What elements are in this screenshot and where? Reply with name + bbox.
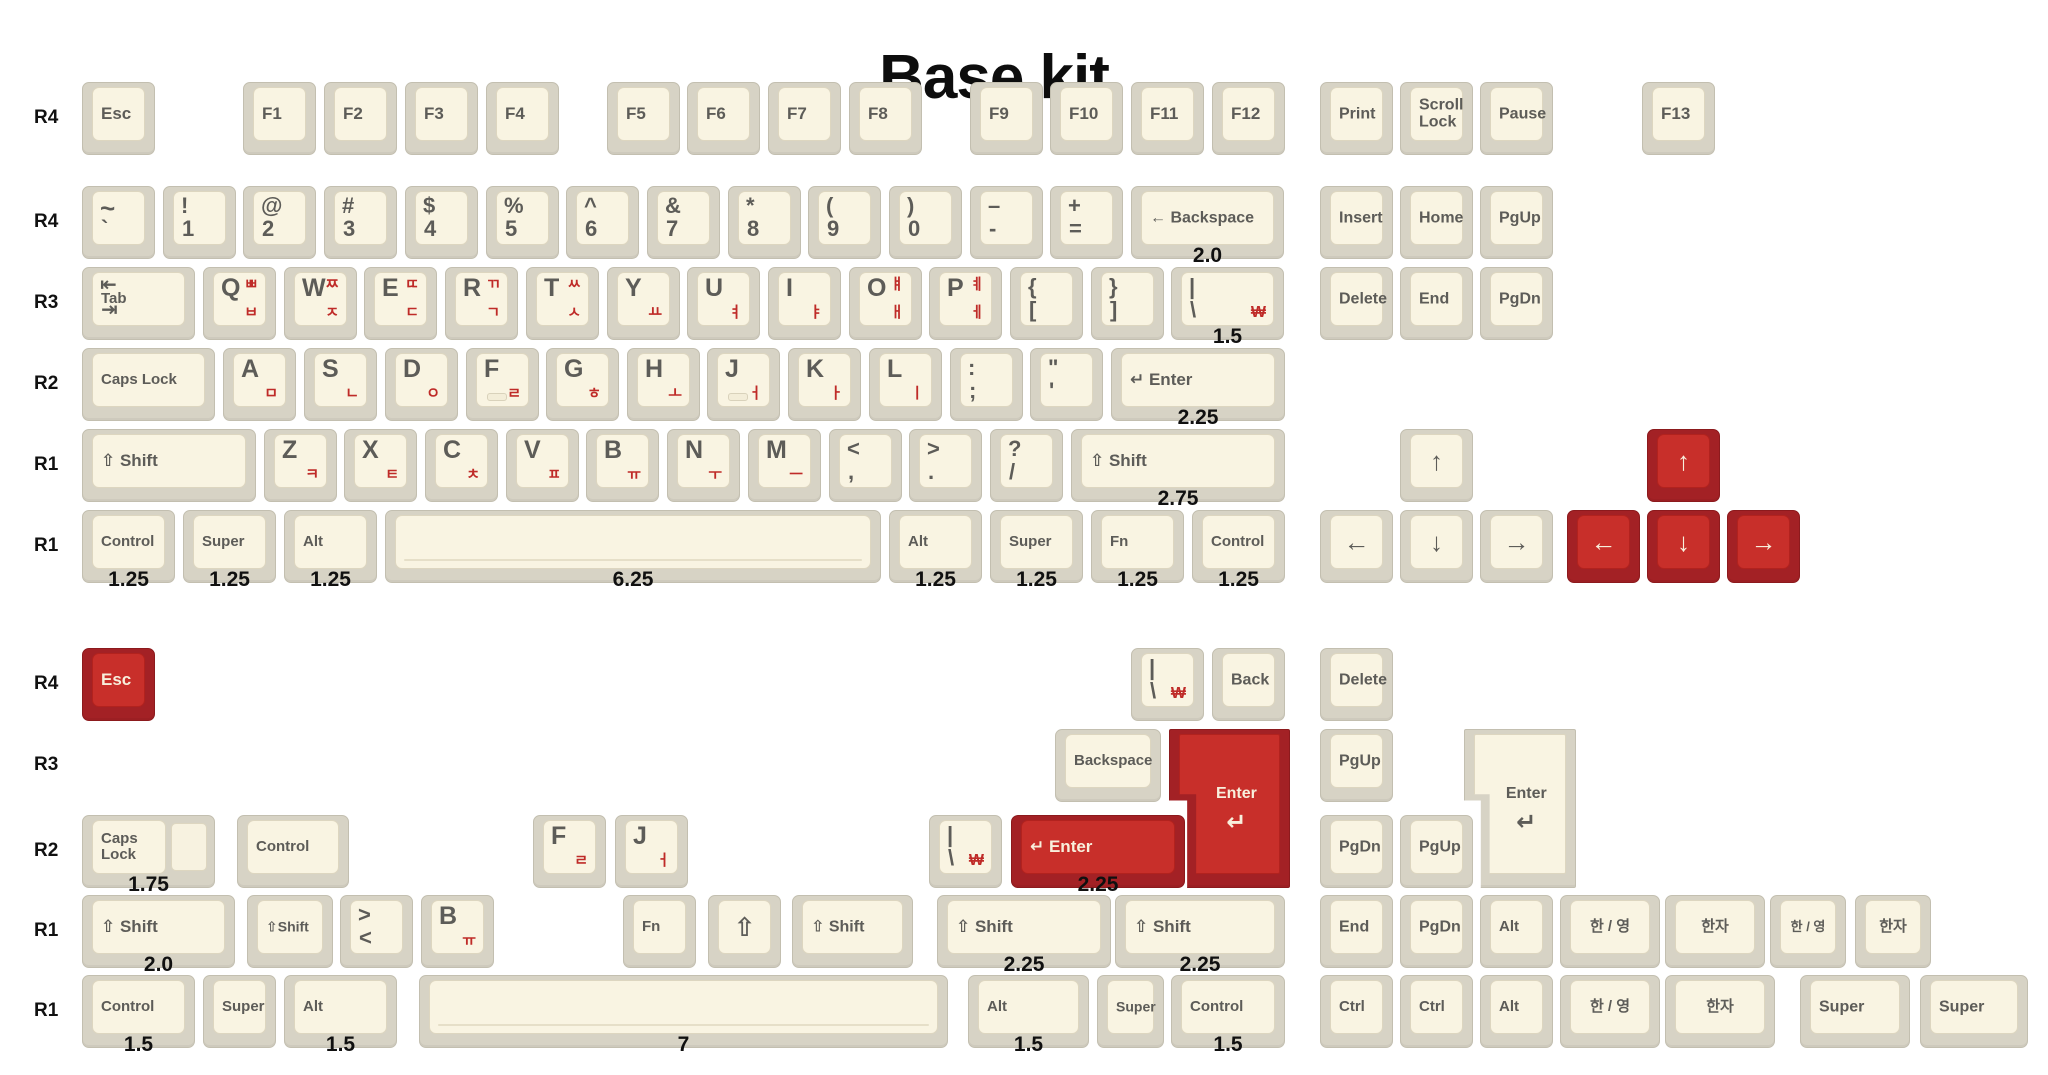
- key-legend: (: [826, 194, 833, 218]
- keycap-top: PgUp: [1490, 191, 1543, 245]
- key-legend: F2: [343, 105, 363, 123]
- keycap-top: Zㅋ: [274, 434, 327, 488]
- key-legend: F: [484, 356, 499, 383]
- key-1: !1: [163, 186, 236, 259]
- key-legend: ㅁ: [264, 386, 278, 402]
- keycap-top: Aㅁ: [233, 353, 286, 407]
- key-0: )0: [889, 186, 962, 259]
- keycap-top: →: [1490, 515, 1543, 569]
- key-legend: >: [358, 903, 371, 927]
- key-legend: Super: [1939, 998, 1984, 1015]
- size-label: 1.25: [1183, 568, 1294, 592]
- keycap-top: ↑: [1657, 434, 1710, 488]
- keycap-top: Jㅓ: [717, 353, 770, 407]
- key-legend: ₩: [1251, 304, 1266, 321]
- key-r: Rㄲㄱ: [445, 267, 518, 340]
- key-g: Gㅎ: [546, 348, 619, 421]
- key-legend: ': [1049, 379, 1054, 403]
- key-f2: F2: [324, 82, 397, 155]
- key-legend: :: [968, 356, 975, 380]
- keycap-top: F11: [1141, 87, 1194, 141]
- key-legend: }: [1109, 275, 1118, 299]
- key-l: Lㅣ: [869, 348, 942, 421]
- key-spacebar-7u: 7: [419, 975, 948, 1048]
- key-legend: Ctrl: [1419, 999, 1445, 1015]
- key-lbracket: {[: [1010, 267, 1083, 340]
- keycap-top: Caps Lock: [92, 820, 166, 874]
- key-legend: E: [382, 275, 399, 302]
- key-legend: 한 / 영: [1590, 919, 1630, 935]
- keycap-top: Back: [1222, 653, 1275, 707]
- keycap-top: ⇧ Shift: [1081, 434, 1275, 488]
- keycap-top: Xㅌ: [354, 434, 407, 488]
- key-f12: F12: [1212, 82, 1285, 155]
- key-shift-2-25u-b: ⇧ Shift2.25: [1115, 895, 1285, 968]
- row-label: R3: [34, 754, 80, 776]
- keycap-top: Rㄲㄱ: [455, 272, 508, 326]
- key-delete-alt: Delete: [1320, 648, 1393, 721]
- keycap-top: }]: [1101, 272, 1154, 326]
- key-legend: F6: [706, 105, 726, 123]
- key-legend: Back: [1231, 671, 1269, 688]
- key-a: Aㅁ: [223, 348, 296, 421]
- size-label: 1.25: [275, 568, 386, 592]
- key-legend: ㅗ: [668, 386, 682, 402]
- key-legend: Control: [101, 534, 154, 550]
- keycap-top: ><: [350, 900, 403, 954]
- row-label: R1: [34, 535, 80, 557]
- key-legend: A: [241, 356, 259, 383]
- keycap-top: Esc: [92, 653, 145, 707]
- keycap-top: PgDn: [1330, 820, 1383, 874]
- key-legend: Delete: [1339, 290, 1387, 307]
- key-semicolon: :;: [950, 348, 1023, 421]
- size-label: 6.25: [376, 568, 890, 592]
- keycap-top: Alt: [294, 980, 387, 1034]
- key-left-super: Super1.25: [183, 510, 276, 583]
- keycap-top: Caps Lock: [92, 353, 205, 407]
- keycap-top: !1: [173, 191, 226, 245]
- key-legend: &: [665, 194, 681, 218]
- key-legend: ⇧ Shift: [1090, 452, 1147, 470]
- key-legend: Y: [625, 275, 642, 302]
- key-legend: Esc: [101, 105, 131, 123]
- keycap-top: F10: [1060, 87, 1113, 141]
- size-label: 2.0: [73, 953, 244, 977]
- keycap-top: Super: [1810, 980, 1900, 1034]
- key-legend: ㅂ: [244, 305, 258, 321]
- key-legend: 한자: [1879, 919, 1907, 935]
- keycap-top: Cㅊ: [435, 434, 488, 488]
- key-quote: "': [1030, 348, 1103, 421]
- keycap-top: ⇧Shift: [257, 900, 323, 954]
- key-shift-2-25u-a: ⇧ Shift2.25: [937, 895, 1111, 968]
- keycap-top: @2: [253, 191, 306, 245]
- keycap-top: Delete: [1330, 272, 1383, 326]
- key-legend: F1: [262, 105, 282, 123]
- key-legend: %: [504, 194, 524, 218]
- key-2: @2: [243, 186, 316, 259]
- key-legend: L: [887, 356, 902, 383]
- key-f4: F4: [486, 82, 559, 155]
- keycap-top: Hㅗ: [637, 353, 690, 407]
- keycap-top: "': [1040, 353, 1093, 407]
- keycap-top: ⇧ Shift: [92, 900, 225, 954]
- key-alt-1-5u-left: Alt1.5: [284, 975, 397, 1048]
- keycap-top: Super: [1107, 980, 1154, 1034]
- key-legend: Ctrl: [1339, 999, 1365, 1015]
- key-legend: ⇧ Shift: [811, 918, 864, 935]
- keycap-top: PgUp: [1330, 734, 1383, 788]
- keycap-top: ^6: [576, 191, 629, 245]
- key-legend: –: [988, 194, 1000, 218]
- key-tab: ⇤Tab⇥: [82, 267, 195, 340]
- key-arrow-left-red: ←: [1567, 510, 1640, 583]
- key-legend: Z: [282, 437, 297, 464]
- key-f6: F6: [687, 82, 760, 155]
- keycap-top: {[: [1020, 272, 1073, 326]
- key-p: Pㅖㅔ: [929, 267, 1002, 340]
- key-legend: ": [1048, 356, 1058, 380]
- key-legend: F: [551, 823, 566, 850]
- key-legend: ⇧ Shift: [101, 918, 158, 936]
- key-legend: B: [439, 903, 457, 930]
- key-minus: –-: [970, 186, 1043, 259]
- key-legend: Super: [222, 999, 265, 1015]
- key-legend: Alt: [303, 534, 323, 550]
- key-grave: ~`: [82, 186, 155, 259]
- keycap-top: Alt: [294, 515, 367, 569]
- key-legend: ㅒ: [890, 277, 904, 293]
- key-angle-bracket: ><: [340, 895, 413, 968]
- keycap-top: Jㅓ: [625, 820, 678, 874]
- size-label: 1.5: [1162, 1033, 1294, 1057]
- key-f7: F7: [768, 82, 841, 155]
- key-legend: J: [633, 823, 647, 850]
- row-label: R1: [34, 920, 80, 942]
- key-legend: ↵: [1226, 810, 1246, 836]
- key-legend: \: [948, 846, 954, 870]
- key-o: Oㅒㅐ: [849, 267, 922, 340]
- key-legend: ←: [1344, 528, 1370, 556]
- key-legend: ㅆ: [567, 277, 581, 293]
- key-legend: ₩: [1171, 685, 1186, 702]
- key-legend: ㅌ: [385, 467, 399, 483]
- key-legend: ?: [1008, 437, 1021, 461]
- keycap-top: Ctrl: [1410, 980, 1463, 1034]
- key-pgdn-alt-2: PgDn: [1400, 895, 1473, 968]
- key-f3: F3: [405, 82, 478, 155]
- row-label: R1: [34, 454, 80, 476]
- key-pgdn-alt: PgDn: [1320, 815, 1393, 888]
- keycap-top: Alt: [1490, 900, 1543, 954]
- key-legend: F5: [626, 105, 646, 123]
- keycap-top: [395, 515, 871, 569]
- keycap-top: PgUp: [1410, 820, 1463, 874]
- keycap-top: ↓: [1657, 515, 1710, 569]
- key-legend: |: [1149, 656, 1155, 680]
- key-legend: ㄱ: [486, 305, 500, 321]
- keycap-top: Scroll Lock: [1410, 87, 1463, 141]
- keycap-top: Lㅣ: [879, 353, 932, 407]
- key-enter-red: ↵ Enter2.25: [1011, 815, 1185, 888]
- key-delete: Delete: [1320, 267, 1393, 340]
- keycap-top: Pause: [1490, 87, 1543, 141]
- key-arrow-up-red: ↑: [1647, 429, 1720, 502]
- key-period: >.: [909, 429, 982, 502]
- key-legend: ㅉ: [325, 277, 339, 293]
- row-label: R4: [34, 211, 80, 233]
- key-legend: @: [261, 194, 282, 218]
- key-q: Qㅃㅂ: [203, 267, 276, 340]
- key-super-alt: Super: [203, 975, 276, 1048]
- key-insert: Insert: [1320, 186, 1393, 259]
- keycap-top: Yㅛ: [617, 272, 670, 326]
- key-legend: I: [786, 275, 793, 302]
- keycap-top: ⇧ Shift: [802, 900, 903, 954]
- key-legend: PgUp: [1339, 752, 1381, 769]
- key-legend: F12: [1231, 105, 1260, 123]
- size-label: 1.25: [73, 568, 184, 592]
- row-label: R3: [34, 292, 80, 314]
- keycap-top: ⇧ Shift: [92, 434, 246, 488]
- keycap-top: F13: [1652, 87, 1705, 141]
- key-legend: 한자: [1701, 919, 1729, 935]
- key-f: Fㄹ: [466, 348, 539, 421]
- key-f10: F10: [1050, 82, 1123, 155]
- key-legend: Esc: [101, 671, 131, 689]
- keycap-top: ↓: [1410, 515, 1463, 569]
- key-legend: F7: [787, 105, 807, 123]
- key-han-yeong-a: 한 / 영: [1560, 895, 1660, 968]
- keycap-top: Insert: [1330, 191, 1383, 245]
- row-label: R4: [34, 673, 80, 695]
- key-legend: F11: [1150, 105, 1178, 123]
- size-label: 2.25: [928, 953, 1120, 977]
- key-legend: ↵: [1516, 810, 1536, 836]
- key-legend: 6: [585, 217, 597, 241]
- keycap-top: F4: [496, 87, 549, 141]
- key-f13: F13: [1642, 82, 1715, 155]
- keycap-top: Qㅃㅂ: [213, 272, 266, 326]
- keycap-top: PgDn: [1490, 272, 1543, 326]
- key-legend: /: [1009, 460, 1015, 484]
- key-legend: 9: [827, 217, 839, 241]
- key-backspace-alt: Backspace: [1055, 729, 1161, 802]
- key-legend: ⇧ Shift: [1134, 918, 1191, 936]
- key-legend: Control: [256, 839, 309, 855]
- keycap-top: Dㅇ: [395, 353, 448, 407]
- keycap-top: <,: [839, 434, 892, 488]
- keycap-top: ⇤Tab⇥: [92, 272, 185, 326]
- key-legend: ㅏ: [829, 386, 843, 402]
- key-legend: ㅎ: [587, 386, 601, 402]
- keycap-top: →: [1737, 515, 1790, 569]
- key-right-control: Control1.25: [1192, 510, 1285, 583]
- key-legend: 3: [343, 217, 355, 241]
- key-legend: U: [705, 275, 723, 302]
- key-legend: M: [766, 437, 787, 464]
- keycap-top: Super: [193, 515, 266, 569]
- key-legend: <: [847, 437, 860, 461]
- keycap-top: Oㅒㅐ: [859, 272, 912, 326]
- key-legend: 한 / 영: [1590, 999, 1630, 1015]
- key-legend: Alt: [1499, 999, 1519, 1015]
- keycap-top: ?/: [1000, 434, 1053, 488]
- key-left-control: Control1.25: [82, 510, 175, 583]
- key-legend: `: [101, 217, 108, 241]
- key-legend: ㄹ: [574, 853, 588, 869]
- key-legend: ⇧ Shift: [101, 452, 158, 470]
- key-right-shift: ⇧ Shift2.75: [1071, 429, 1285, 502]
- size-label: 1.5: [275, 1033, 406, 1057]
- key-legend: PgUp: [1419, 838, 1461, 855]
- key-legend: G: [564, 356, 583, 383]
- key-b-alt: Bㅠ: [421, 895, 494, 968]
- key-legend: Alt: [987, 999, 1007, 1015]
- key-legend: ⇧ Shift: [956, 918, 1013, 936]
- keycap-top: End: [1330, 900, 1383, 954]
- keycap-top: ↑: [1410, 434, 1463, 488]
- key-legend: Super: [1009, 534, 1052, 550]
- keycap-top: F5: [617, 87, 670, 141]
- key-legend: O: [867, 275, 886, 302]
- key-legend: F3: [424, 105, 444, 123]
- key-legend: =: [1069, 217, 1082, 241]
- key-left-alt: Alt1.25: [284, 510, 377, 583]
- key-legend: ): [907, 194, 914, 218]
- keycap-top: Delete: [1330, 653, 1383, 707]
- key-legend: B: [604, 437, 622, 464]
- key-enter: ↵ Enter2.25: [1111, 348, 1285, 421]
- key-z: Zㅋ: [264, 429, 337, 502]
- key-legend: {: [1028, 275, 1037, 299]
- key-legend: ⇥: [101, 300, 118, 322]
- key-legend: 한 / 영: [1791, 920, 1826, 934]
- row-label: R2: [34, 373, 80, 395]
- key-f-alt: Fㄹ: [533, 815, 606, 888]
- key-legend: ㅜ: [708, 467, 722, 483]
- key-legend: 4: [424, 217, 436, 241]
- key-right-alt: Alt1.25: [889, 510, 982, 583]
- keycap-top: F8: [859, 87, 912, 141]
- key-h: Hㅗ: [627, 348, 700, 421]
- keycap-top: Control: [92, 515, 165, 569]
- key-legend: ㄲ: [486, 277, 500, 293]
- key-legend: Enter: [1216, 785, 1257, 802]
- key-legend: ^: [584, 194, 597, 218]
- key-9: (9: [808, 186, 881, 259]
- key-arrow-up: ↑: [1400, 429, 1473, 502]
- key-caps-lock: Caps Lock: [82, 348, 215, 421]
- key-legend: .: [928, 460, 934, 484]
- key-m: Mㅡ: [748, 429, 821, 502]
- key-legend: ⇧Shift: [266, 919, 309, 934]
- keycap-top: ←: [1577, 515, 1630, 569]
- key-legend: -: [989, 217, 996, 241]
- key-legend: End: [1339, 918, 1369, 935]
- keycap-top: Super: [1930, 980, 2018, 1034]
- key-f1: F1: [243, 82, 316, 155]
- key-iso-enter: Enter↵: [1464, 729, 1576, 888]
- key-y: Yㅛ: [607, 267, 680, 340]
- key-pgup: PgUp: [1480, 186, 1553, 259]
- key-shift-1-5u: ⇧ Shift: [792, 895, 913, 968]
- key-legend: R: [463, 275, 481, 302]
- key-pause: Pause: [1480, 82, 1553, 155]
- keycap-top: Mㅡ: [758, 434, 811, 488]
- keycap-top: $4: [415, 191, 468, 245]
- key-end: End: [1400, 267, 1473, 340]
- keycap-top: Enter↵: [1474, 734, 1566, 874]
- key-6: ^6: [566, 186, 639, 259]
- keycap-top: Nㅜ: [677, 434, 730, 488]
- keycap-top: Vㅍ: [516, 434, 569, 488]
- keycap-top: Esc: [92, 87, 145, 141]
- keycap-top: Fㄹ: [476, 353, 529, 407]
- keycap-top: Enter↵: [1179, 734, 1280, 874]
- key-arrow-left: ←: [1320, 510, 1393, 583]
- key-legend: 0: [908, 217, 920, 241]
- size-label: 1.5: [1162, 325, 1293, 349]
- size-label: 1.75: [73, 873, 224, 897]
- key-u: Uㅕ: [687, 267, 760, 340]
- key-legend: 2: [262, 217, 274, 241]
- key-han-yeong-c: 한 / 영: [1560, 975, 1660, 1048]
- key-legend: F9: [989, 105, 1009, 123]
- key-legend: 7: [666, 217, 678, 241]
- size-label: 1.25: [981, 568, 1092, 592]
- key-legend: ㄸ: [405, 277, 419, 293]
- key-back: Back: [1212, 648, 1285, 721]
- keycap-top: ⇧ Shift: [1125, 900, 1275, 954]
- size-label: 1.25: [1082, 568, 1193, 592]
- key-legend: ㅋ: [305, 467, 319, 483]
- key-home: Home: [1400, 186, 1473, 259]
- key-3: #3: [324, 186, 397, 259]
- key-control-1-5u-right: Control1.5: [1171, 975, 1285, 1048]
- keycap-top: Control: [247, 820, 339, 874]
- row-label: R1: [34, 1000, 80, 1022]
- key-f8: F8: [849, 82, 922, 155]
- key-end-alt: End: [1320, 895, 1393, 968]
- key-legend: F10: [1069, 105, 1098, 123]
- keycap-top: Control: [1202, 515, 1275, 569]
- key-arrow-down: ↓: [1400, 510, 1473, 583]
- key-legend: ㅣ: [910, 386, 924, 402]
- keycap-top: Gㅎ: [556, 353, 609, 407]
- keycap-top: |\₩: [1181, 272, 1274, 326]
- key-legend: Enter: [1506, 785, 1547, 802]
- key-legend: #: [342, 194, 354, 218]
- key-7: &7: [647, 186, 720, 259]
- key-legend: ㅑ: [809, 305, 823, 321]
- key-legend: ㅓ: [748, 386, 762, 402]
- key-legend: V: [524, 437, 541, 464]
- keycap-top: –-: [980, 191, 1033, 245]
- key-comma: <,: [829, 429, 902, 502]
- key-legend: ㄷ: [405, 305, 419, 321]
- key-legend: >: [927, 437, 940, 461]
- key-legend: ↑: [1677, 447, 1690, 475]
- key-legend: ㅓ: [656, 853, 670, 869]
- key-legend: ㅃ: [244, 277, 258, 293]
- key-legend: ;: [969, 379, 976, 403]
- key-legend: K: [806, 356, 824, 383]
- key-t: Tㅆㅅ: [526, 267, 599, 340]
- key-hanja-c: 한자: [1665, 975, 1775, 1048]
- key-legend: 1: [182, 217, 194, 241]
